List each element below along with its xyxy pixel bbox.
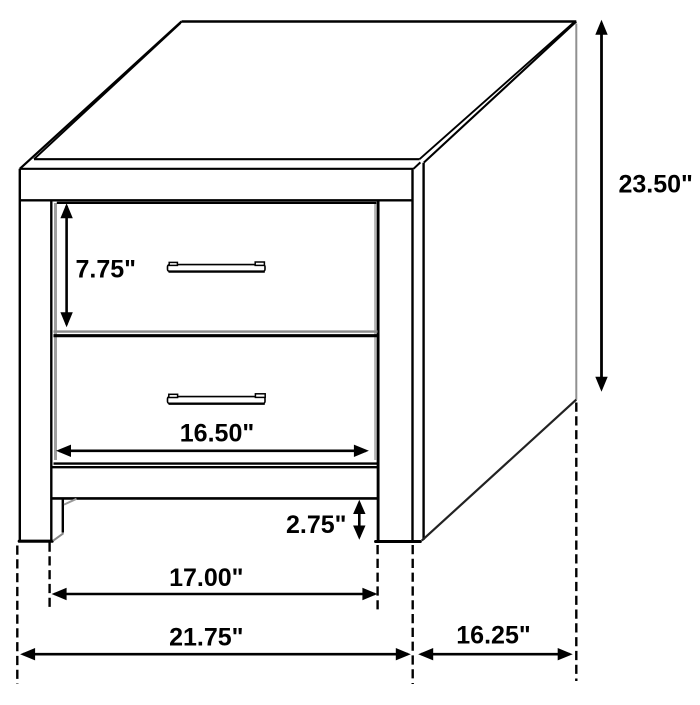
svg-text:2.75": 2.75" <box>286 511 347 539</box>
svg-text:21.75": 21.75" <box>169 624 243 652</box>
svg-text:17.00": 17.00" <box>169 564 243 592</box>
svg-text:23.50": 23.50" <box>619 170 693 198</box>
svg-text:16.25": 16.25" <box>456 622 530 650</box>
svg-text:7.75": 7.75" <box>76 256 137 284</box>
svg-text:16.50": 16.50" <box>180 419 254 447</box>
